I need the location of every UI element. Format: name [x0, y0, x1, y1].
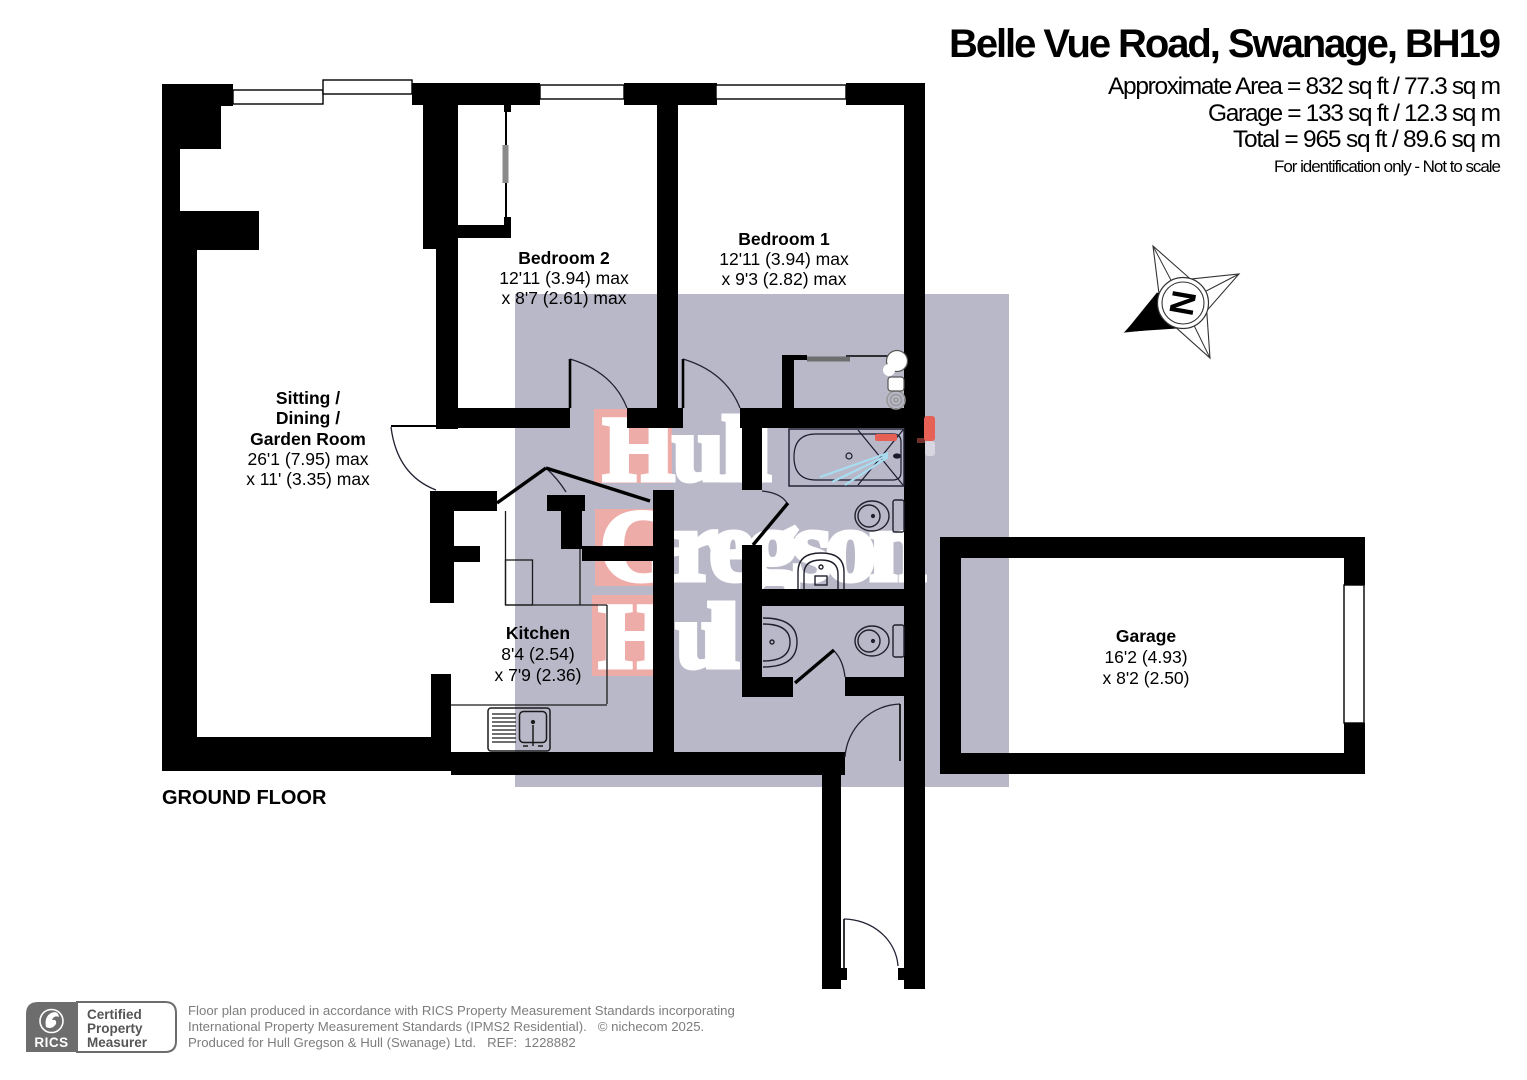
- svg-text:Property: Property: [87, 1021, 143, 1036]
- svg-text:x 8'2 (2.50): x 8'2 (2.50): [1103, 668, 1190, 688]
- svg-text:Measurer: Measurer: [87, 1035, 148, 1050]
- svg-text:x 8'7 (2.61) max: x 8'7 (2.61) max: [502, 288, 627, 308]
- svg-text:x 7'9 (2.36): x 7'9 (2.36): [495, 665, 582, 685]
- svg-text:12'11 (3.94) max: 12'11 (3.94) max: [719, 249, 849, 269]
- svg-text:x 9'3 (2.82) max: x 9'3 (2.82) max: [722, 269, 847, 289]
- svg-text:International Property Measure: International Property Measurement Stand…: [188, 1019, 704, 1034]
- svg-text:Sitting /: Sitting /: [276, 388, 340, 408]
- svg-text:Certified: Certified: [87, 1007, 142, 1022]
- svg-text:For identification only - Not: For identification only - Not to scale: [1274, 157, 1501, 176]
- svg-text:Bedroom 2: Bedroom 2: [518, 248, 610, 268]
- svg-text:Approximate Area = 832 sq ft /: Approximate Area = 832 sq ft / 77.3 sq m: [1108, 73, 1501, 100]
- svg-text:8'4 (2.54): 8'4 (2.54): [501, 644, 574, 664]
- svg-text:Garage: Garage: [1116, 626, 1177, 646]
- svg-text:Garage = 133 sq ft / 12.3 sq m: Garage = 133 sq ft / 12.3 sq m: [1208, 100, 1501, 127]
- svg-text:Garden Room: Garden Room: [250, 429, 366, 449]
- svg-text:26'1 (7.95) max: 26'1 (7.95) max: [247, 449, 368, 469]
- svg-text:RICS: RICS: [34, 1035, 68, 1050]
- svg-text:Produced for Hull Gregson & Hu: Produced for Hull Gregson & Hull (Swanag…: [188, 1035, 576, 1050]
- svg-text:Kitchen: Kitchen: [506, 623, 570, 643]
- svg-text:16'2 (4.93): 16'2 (4.93): [1104, 647, 1187, 667]
- svg-text:x 11' (3.35) max: x 11' (3.35) max: [246, 469, 370, 489]
- svg-text:Total = 965 sq ft / 89.6 sq m: Total = 965 sq ft / 89.6 sq m: [1233, 126, 1501, 153]
- svg-text:Belle Vue Road, Swanage, BH19: Belle Vue Road, Swanage, BH19: [949, 22, 1501, 66]
- svg-text:Dining /: Dining /: [276, 408, 340, 428]
- svg-text:ull: ull: [676, 585, 739, 687]
- svg-text:GROUND FLOOR: GROUND FLOOR: [162, 787, 327, 809]
- svg-text:12'11 (3.94) max: 12'11 (3.94) max: [499, 268, 629, 288]
- svg-text:Floor plan produced in accorda: Floor plan produced in accordance with R…: [188, 1003, 735, 1018]
- svg-text:Bedroom 1: Bedroom 1: [738, 229, 830, 249]
